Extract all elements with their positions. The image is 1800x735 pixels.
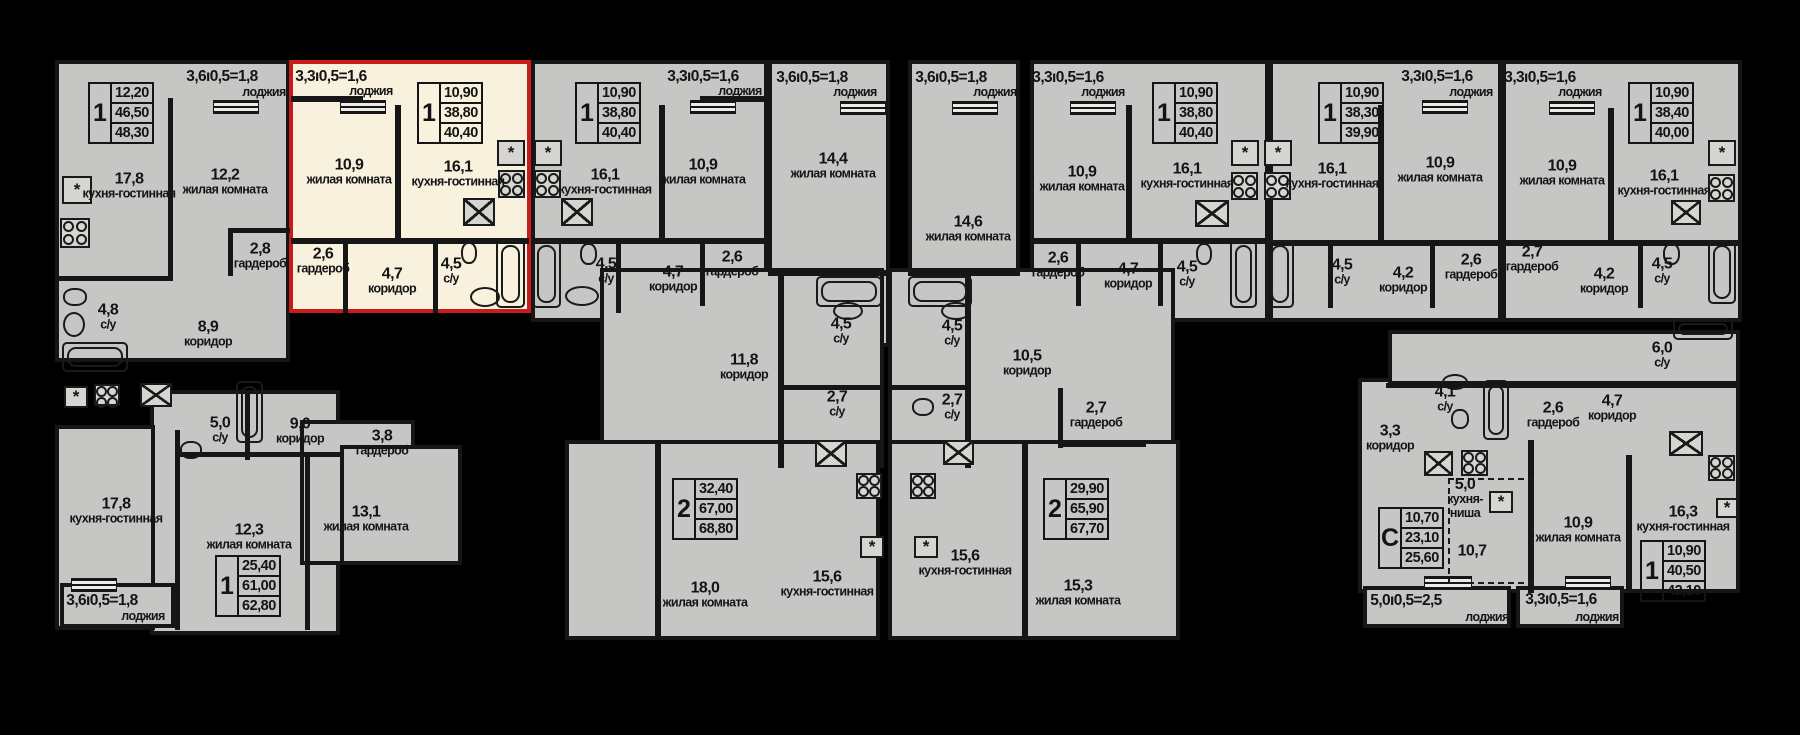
area-value: 10,90 — [1342, 84, 1382, 104]
area-value: 46,50 — [112, 104, 152, 124]
room-label: 2,6гардероб — [297, 246, 350, 277]
room-area-value: 10,9 — [1398, 155, 1483, 172]
apartment-type: 1 — [217, 557, 239, 615]
room-area-value: 10,7 — [1458, 542, 1487, 559]
room-area-value: 14,4 — [791, 151, 876, 168]
area-value: 25,40 — [239, 557, 279, 577]
loggia-area-formula: 5,0ı0,5=2,5 — [1370, 592, 1441, 610]
room-name: жилая комната — [207, 539, 292, 553]
apartment-type: 2 — [1045, 480, 1067, 538]
area-value: 29,90 — [1067, 480, 1107, 500]
kitchen-sink-icon — [943, 440, 974, 465]
balcony-rail — [1549, 101, 1595, 115]
room-area-value: 4,5 — [831, 316, 851, 333]
room-area-value: 15,6 — [781, 569, 874, 586]
room-label: 4,5с/у — [942, 318, 962, 349]
room-label: 10,9жилая комната — [1040, 164, 1125, 195]
wall — [616, 244, 621, 313]
area-value: 12,20 — [112, 84, 152, 104]
wall — [55, 276, 173, 281]
wall — [433, 244, 438, 313]
room-label: 5,0с/у — [210, 415, 230, 446]
vent-shaft-icon: * — [1708, 140, 1736, 166]
balcony-rail — [952, 101, 998, 115]
room-name: гардероб — [297, 263, 350, 277]
stove-icon — [534, 170, 561, 198]
stove-icon — [1461, 450, 1488, 476]
room-name: жилая комната — [791, 168, 876, 182]
room-area-value: 2,7 — [942, 392, 962, 409]
room-name: с/у — [441, 273, 461, 287]
area-value: 38,30 — [1342, 104, 1382, 124]
room-area-value: 10,9 — [661, 157, 746, 174]
room-name: коридор — [184, 336, 232, 350]
room-name: гардероб — [1506, 261, 1559, 275]
room-label: 15,6кухня-гостинная — [919, 548, 1012, 579]
room-name: с/у — [1177, 276, 1197, 290]
room-label: 3,8гардероб — [356, 428, 409, 459]
room-label: 16,1кухня-гостинная — [559, 167, 652, 198]
area-value: 62,80 — [239, 597, 279, 615]
wall — [1626, 455, 1632, 593]
room-label: 4,7коридор — [1588, 393, 1636, 424]
bathtub-icon — [1230, 240, 1257, 308]
room-name: с/у — [210, 432, 230, 446]
room-label: 16,1кухня-гостинная — [1141, 161, 1234, 192]
room-name: кухня-гостинная — [559, 184, 652, 198]
room-area-value: 8,9 — [184, 319, 232, 336]
room-area-value: 11,8 — [720, 352, 768, 369]
vent-shaft-icon: * — [64, 386, 88, 408]
room-area-value: 15,3 — [1036, 578, 1121, 595]
area-value: 40,40 — [1176, 124, 1216, 142]
room-label: 10,9жилая комната — [307, 157, 392, 188]
room-label: 4,1с/у — [1435, 384, 1455, 415]
room-name: жилая комната — [307, 174, 392, 188]
room-area-value: 4,2 — [1580, 266, 1628, 283]
room-label: 4,2коридор — [1580, 266, 1628, 297]
room-area-value: 4,5 — [1652, 256, 1672, 273]
apartment-info-box: 229,9065,9067,70 — [1043, 478, 1109, 540]
room-area-value: 6,0 — [1652, 340, 1672, 357]
room-area-value: 10,9 — [1536, 515, 1621, 532]
room-area-value: 4,8 — [98, 302, 118, 319]
apartment-info-box: 110,9038,8040,40 — [575, 82, 641, 144]
room-name: коридор — [1104, 278, 1152, 292]
room-area-value: 10,9 — [307, 157, 392, 174]
wall — [180, 452, 340, 457]
room-name: коридор — [276, 433, 324, 447]
room-label: 4,5с/у — [596, 256, 616, 287]
stove-icon — [856, 473, 882, 499]
bathtub-inner — [241, 386, 258, 438]
room-name: жилая комната — [663, 597, 748, 611]
apartment-info-box: С10,7023,1025,60 — [1378, 507, 1444, 569]
room-name: жилая комната — [926, 231, 1011, 245]
loggia-area-formula: 3,3ı0,5=1,6 — [1401, 68, 1472, 86]
room-area-value: 4,5 — [942, 318, 962, 335]
room-name: кухня-гостинная — [919, 565, 1012, 579]
room-name: коридор — [720, 369, 768, 383]
room-name: с/у — [1652, 357, 1672, 371]
bathtub-icon — [1483, 380, 1509, 440]
room-name: с/у — [1332, 274, 1352, 288]
balcony-rail — [1070, 101, 1116, 115]
room-area-value: 2,7 — [1506, 244, 1559, 261]
stove-icon — [1231, 172, 1258, 200]
wall — [228, 228, 290, 233]
room-name: жилая комната — [1520, 175, 1605, 189]
room-label: 4,5с/у — [441, 256, 461, 287]
apartment-type: 1 — [1154, 84, 1176, 142]
room-label: 2,7с/у — [942, 392, 962, 423]
apartment-areas: 25,4061,0062,80 — [239, 557, 279, 615]
apartment-areas: 32,4067,0068,80 — [696, 480, 736, 538]
bathtub-inner — [1678, 323, 1728, 335]
apartment-type: 1 — [1642, 542, 1664, 600]
room-area-value: 2,7 — [1070, 400, 1123, 417]
room-name: жилая комната — [1398, 172, 1483, 186]
room-name: с/у — [1652, 273, 1672, 287]
area-value: 10,90 — [1176, 84, 1216, 104]
loggia-area-formula: 3,3ı0,5=1,6 — [1525, 591, 1596, 609]
loggia-name: лоджия — [1081, 85, 1124, 99]
toilet-icon — [1196, 243, 1212, 265]
bathtub-icon — [62, 342, 128, 372]
loggia-name: лоджия — [1449, 85, 1492, 99]
room-label: 10,9жилая комната — [1536, 515, 1621, 546]
apartment-type: 1 — [1320, 84, 1342, 142]
loggia-name: лоджия — [1558, 85, 1601, 99]
wall — [175, 430, 180, 630]
area-value: 68,80 — [696, 520, 736, 538]
room-label: 2,7с/у — [827, 389, 847, 420]
room-area-value: 4,7 — [368, 266, 416, 283]
loggia-name: лоджия — [121, 609, 164, 623]
kitchen-sink-icon — [815, 440, 847, 467]
room-name: кухня-гостинная — [781, 586, 874, 600]
room-area-value: 2,6 — [1445, 252, 1498, 269]
area-value: 10,90 — [1652, 84, 1692, 104]
kitchen-sink-icon — [140, 383, 172, 407]
stove-icon — [1708, 455, 1735, 481]
room-name: гардероб — [1070, 417, 1123, 431]
room-label: 6,0с/у — [1652, 340, 1672, 371]
apartment-type: 2 — [674, 480, 696, 538]
room-name: кухня-гостинная — [83, 188, 176, 202]
room-label: 4,5с/у — [1177, 259, 1197, 290]
apartment-areas: 12,2046,5048,30 — [112, 84, 152, 142]
wall — [1058, 388, 1063, 448]
room-label: 9,0коридор — [276, 416, 324, 447]
room-name: кухня-гостинная — [1618, 185, 1711, 199]
wall — [1158, 244, 1163, 306]
area-value: 10,70 — [1402, 509, 1442, 529]
room-label: 16,1кухня-гостинная — [412, 159, 505, 190]
room-area-value: 5,0 — [1447, 476, 1483, 493]
room-label: 4,7коридор — [368, 266, 416, 297]
room-area-value: 3,8 — [356, 428, 409, 445]
room-area-value: 3,3 — [1366, 423, 1414, 440]
room-label: 16,3кухня-гостинная — [1637, 504, 1730, 535]
room-label: 17,8кухня-гостинная — [83, 171, 176, 202]
wall — [395, 105, 401, 243]
room-label: 3,3коридор — [1366, 423, 1414, 454]
room-name: гардероб — [1527, 417, 1580, 431]
room-area-value: 16,1 — [1618, 168, 1711, 185]
area-value: 65,90 — [1067, 500, 1107, 520]
room-name: жилая комната — [324, 521, 409, 535]
room-area-value: 2,6 — [1032, 250, 1085, 267]
apartment-type: 1 — [1630, 84, 1652, 142]
room-area-value: 18,0 — [663, 580, 748, 597]
area-value: 38,40 — [1652, 104, 1692, 124]
wall — [888, 385, 968, 390]
apartment-type: С — [1380, 509, 1402, 567]
room-area-value: 16,1 — [412, 159, 505, 176]
apartment-info-box: 112,2046,5048,30 — [88, 82, 154, 144]
wall — [305, 452, 310, 630]
room-name: с/у — [1435, 401, 1455, 415]
apartment-info-box: 110,9038,4040,00 — [1628, 82, 1694, 144]
balcony-rail — [840, 101, 886, 115]
bathtub-inner — [1271, 245, 1289, 303]
floor-plan-canvas: *********** 17,8кухня-гостинная12,2жилая… — [0, 0, 1800, 735]
wall — [778, 268, 784, 468]
wall — [1608, 108, 1614, 242]
room-name: жилая комната — [661, 174, 746, 188]
room-area-value: 2,6 — [706, 249, 759, 266]
room-label: 14,4жилая комната — [791, 151, 876, 182]
balcony-rail — [71, 578, 117, 592]
wall — [700, 244, 705, 306]
stove-icon — [910, 473, 936, 499]
vent-shaft-icon: * — [1231, 140, 1259, 166]
room-label: 4,7коридор — [649, 264, 697, 295]
room-name: кухня-гостинная — [1637, 521, 1730, 535]
apartment-areas: 10,9038,8040,40 — [1176, 84, 1216, 142]
wall — [1022, 440, 1028, 640]
room-name: гардероб — [706, 266, 759, 280]
toilet-icon — [180, 441, 202, 459]
toilet-icon — [912, 398, 934, 416]
room-label: 2,8гардероб — [234, 241, 287, 272]
area-value: 61,00 — [239, 577, 279, 597]
kitchen-sink-icon — [463, 198, 495, 226]
room-area-value: 10,9 — [1520, 158, 1605, 175]
loggia-name: лоджия — [833, 85, 876, 99]
room-name: с/у — [942, 335, 962, 349]
room-name: коридор — [649, 281, 697, 295]
sink-icon — [470, 287, 500, 307]
room-area-value: 17,8 — [70, 496, 163, 513]
room-label: 15,6кухня-гостинная — [781, 569, 874, 600]
room-area-value: 14,6 — [926, 214, 1011, 231]
room-name: жилая комната — [1036, 595, 1121, 609]
area-value: 38,80 — [441, 104, 481, 124]
room-label: 18,0жилая комната — [663, 580, 748, 611]
apartment-type: 1 — [90, 84, 112, 142]
room-name: жилая комната — [1536, 532, 1621, 546]
wall — [655, 440, 661, 640]
room-label: 4,7коридор — [1104, 261, 1152, 292]
wall — [291, 238, 529, 244]
room-label: 13,1жилая комната — [324, 504, 409, 535]
stove-icon — [60, 218, 90, 248]
bathtub-inner — [821, 281, 877, 302]
area-value: 42,10 — [1664, 582, 1704, 600]
room-label: 2,6гардероб — [1527, 400, 1580, 431]
room-area-value: 4,7 — [1588, 393, 1636, 410]
room-name: гардероб — [234, 258, 287, 272]
room-label: 10,9жилая комната — [1398, 155, 1483, 186]
room-area-value: 4,2 — [1379, 265, 1427, 282]
bathtub-inner — [1713, 245, 1731, 299]
area-value: 67,70 — [1067, 520, 1107, 538]
apartment-areas: 10,9038,8040,40 — [599, 84, 639, 142]
room-area-value: 9,0 — [276, 416, 324, 433]
room-name: с/у — [596, 273, 616, 287]
room-name: коридор — [1366, 440, 1414, 454]
room-name: кухня- ниша — [1447, 493, 1483, 520]
kitchen-sink-icon — [1195, 200, 1229, 227]
area-value: 39,90 — [1342, 124, 1382, 142]
bathtub-icon — [236, 381, 263, 443]
apartment-areas: 10,9038,3039,90 — [1342, 84, 1382, 142]
bathtub-inner — [67, 347, 123, 367]
kitchen-sink-icon — [1424, 451, 1453, 476]
room-name: кухня-гостинная — [1141, 178, 1234, 192]
room-label: 17,8кухня-гостинная — [70, 496, 163, 527]
apartment-areas: 10,9040,5042,10 — [1664, 542, 1704, 600]
room-label: 15,3жилая комната — [1036, 578, 1121, 609]
bathtub-icon — [1673, 318, 1733, 340]
bathtub-icon — [496, 240, 525, 308]
room-label: 5,0кухня- ниша — [1447, 476, 1483, 520]
room-label: 2,6гардероб — [1032, 250, 1085, 281]
room-label: 2,7гардероб — [1506, 244, 1559, 275]
room-name: гардероб — [1032, 267, 1085, 281]
room-area-value: 10,9 — [1040, 164, 1125, 181]
room-name: коридор — [1379, 282, 1427, 296]
room-area-value: 4,5 — [1332, 257, 1352, 274]
room-name: кухня-гостинная — [70, 513, 163, 527]
room-area-value: 17,8 — [83, 171, 176, 188]
room-area-value: 4,7 — [649, 264, 697, 281]
area-value: 38,80 — [1176, 104, 1216, 124]
room-name: с/у — [942, 409, 962, 423]
loggia-name: лоджия — [242, 85, 285, 99]
room-area-value: 12,3 — [207, 522, 292, 539]
room-name: коридор — [368, 283, 416, 297]
apartment-areas: 29,9065,9067,70 — [1067, 480, 1107, 538]
room-name: жилая комната — [183, 184, 268, 198]
room-label: 2,7гардероб — [1070, 400, 1123, 431]
kitchen-sink-icon — [1671, 200, 1701, 225]
vent-shaft-icon: * — [1489, 491, 1513, 513]
room-label: 4,5с/у — [1332, 257, 1352, 288]
room-label: 10,7 — [1458, 542, 1487, 559]
room-label: 4,5с/у — [1652, 256, 1672, 287]
area-value: 10,90 — [1664, 542, 1704, 562]
room-label: 4,2коридор — [1379, 265, 1427, 296]
area-value: 38,80 — [599, 104, 639, 124]
wall — [1430, 246, 1435, 308]
room-area-value: 13,1 — [324, 504, 409, 521]
area-value: 10,90 — [441, 84, 481, 104]
room-label: 11,8коридор — [720, 352, 768, 383]
wall — [533, 238, 766, 244]
room-label: 10,5коридор — [1003, 348, 1051, 379]
room-area-value: 2,6 — [1527, 400, 1580, 417]
area-value: 23,10 — [1402, 529, 1442, 549]
area-value: 67,00 — [696, 500, 736, 520]
wall — [1638, 246, 1643, 308]
room-label: 4,5с/у — [831, 316, 851, 347]
room-area-value: 12,2 — [183, 167, 268, 184]
area-value: 40,40 — [599, 124, 639, 142]
wall — [1058, 442, 1146, 447]
room-name: с/у — [98, 319, 118, 333]
room-name: с/у — [827, 406, 847, 420]
area-value: 40,50 — [1664, 562, 1704, 582]
apartment-type: 1 — [419, 84, 441, 142]
room-area-value: 2,6 — [297, 246, 350, 263]
apartment-info-box: 125,4061,0062,80 — [215, 555, 281, 617]
bathtub-inner — [913, 281, 967, 302]
apartment-areas: 10,9038,4040,00 — [1652, 84, 1692, 142]
balcony-rail — [1565, 576, 1611, 590]
bathtub-inner — [537, 245, 556, 303]
toilet-icon — [461, 242, 477, 264]
area-value: 40,40 — [441, 124, 481, 142]
vent-shaft-icon: * — [860, 536, 884, 558]
toilet-icon — [580, 243, 597, 265]
room-label: 16,1кухня-гостинная — [1618, 168, 1711, 199]
vent-shaft-icon: * — [534, 140, 562, 166]
room-name: с/у — [831, 333, 851, 347]
room-name: гардероб — [1445, 269, 1498, 283]
room-area-value: 4,5 — [1177, 259, 1197, 276]
balcony-rail — [340, 100, 386, 114]
room-area-value: 4,7 — [1104, 261, 1152, 278]
sink-icon — [63, 312, 85, 337]
bathtub-icon — [1708, 240, 1736, 304]
room-area-value: 2,8 — [234, 241, 287, 258]
area-value: 40,00 — [1652, 124, 1692, 142]
balcony-rail — [690, 100, 736, 114]
wall — [1126, 105, 1132, 241]
apartment-info-box: 110,9038,8040,40 — [417, 82, 483, 144]
room-label: 10,9жилая комната — [661, 157, 746, 188]
room-area-value: 4,1 — [1435, 384, 1455, 401]
area-value: 10,90 — [599, 84, 639, 104]
loggia-area-formula: 3,6ı0,5=1,8 — [66, 592, 137, 610]
room-area-value: 10,5 — [1003, 348, 1051, 365]
stove-icon — [94, 384, 120, 406]
room-area-value: 16,1 — [1141, 161, 1234, 178]
room-label: 14,6жилая комната — [926, 214, 1011, 245]
loggia-name: лоджия — [718, 84, 761, 98]
room-name: жилая комната — [1040, 181, 1125, 195]
room-label: 16,1кухня-гостинная — [1286, 161, 1379, 192]
loggia-name: лоджия — [1575, 610, 1618, 624]
room-area-value: 16,1 — [559, 167, 652, 184]
room-name: кухня-гостинная — [1286, 178, 1379, 192]
apartment-info-box: 232,4067,0068,80 — [672, 478, 738, 540]
room-area-value: 2,7 — [827, 389, 847, 406]
room-area-value: 15,6 — [919, 548, 1012, 565]
